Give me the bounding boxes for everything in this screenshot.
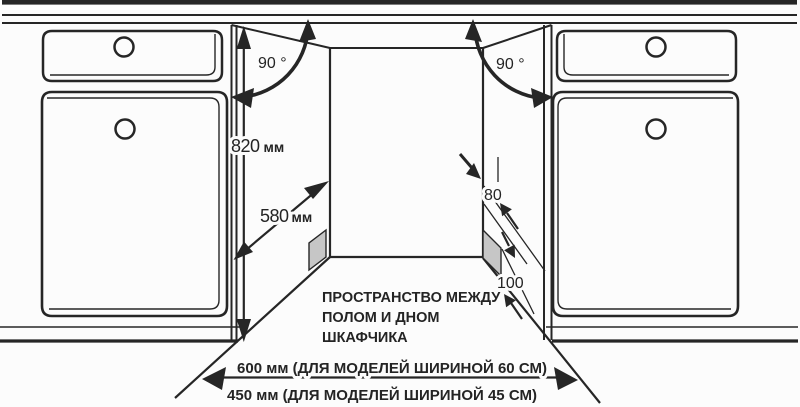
arc-arrow-left	[231, 88, 254, 108]
width-dimension: 600 мм (ДЛЯ МОДЕЛЕЙ ШИРИНОЙ 60 СМ) 450 м…	[202, 359, 578, 404]
clearance-bottom-label: 100	[497, 275, 524, 292]
angle-label-right: 90 °	[496, 56, 525, 73]
right-drawer-bevel	[564, 34, 729, 75]
clearance-side-label: 80	[484, 187, 502, 204]
right-cabinet	[553, 31, 738, 316]
niche-side-walls	[330, 48, 483, 258]
niche-top-edges	[232, 25, 552, 48]
installation-diagram: 90 ° 90 ° 820мм 580мм 80 100 ПРОСТРА	[0, 0, 800, 407]
depth-label: 580мм	[260, 206, 312, 226]
right-drawer-front	[557, 31, 736, 81]
height-dimension-820: 820мм	[231, 26, 284, 342]
depth-arrow-upper	[304, 181, 329, 199]
left-drawer-knob	[115, 38, 134, 57]
angle-dimension-right: 90 °	[465, 19, 553, 108]
right-door-front	[553, 92, 738, 316]
niche	[175, 25, 600, 403]
left-drawer-bevel	[50, 34, 215, 75]
width-600-label: 600 мм (ДЛЯ МОДЕЛЕЙ ШИРИНОЙ 60 СМ)	[237, 359, 547, 377]
left-drawer-front	[43, 31, 222, 81]
right-drawer-knob	[647, 38, 666, 57]
leader-arrow-shaft	[460, 154, 472, 168]
arrow-a-head	[500, 203, 512, 216]
diagram-canvas: 90 ° 90 ° 820мм 580мм 80 100 ПРОСТРА	[0, 0, 800, 407]
height-label: 820мм	[231, 136, 284, 156]
note-line3: ШКАФЧИКА	[322, 330, 408, 346]
left-door-knob	[116, 120, 135, 139]
right-door-knob	[647, 120, 666, 139]
note-line1: ПРОСТРАНСТВО МЕЖДУ	[322, 290, 501, 306]
left-cabinet	[42, 31, 227, 316]
countertop	[2, 0, 797, 23]
note-line2: ПОЛОМ И ДНОМ	[322, 310, 440, 326]
width-450-label: 450 мм (ДЛЯ МОДЕЛЕЙ ШИРИНОЙ 45 СМ)	[227, 386, 537, 404]
left-door-bevel	[47, 98, 219, 309]
note-space-between-floor: ПРОСТРАНСТВО МЕЖДУ ПОЛОМ И ДНОМ ШКАФЧИКА	[322, 290, 501, 346]
countertop-front-lines	[2, 15, 797, 23]
arc-arrow-right	[531, 88, 553, 108]
angle-label-left: 90 °	[258, 55, 287, 72]
countertop-top-edge	[2, 0, 797, 5]
